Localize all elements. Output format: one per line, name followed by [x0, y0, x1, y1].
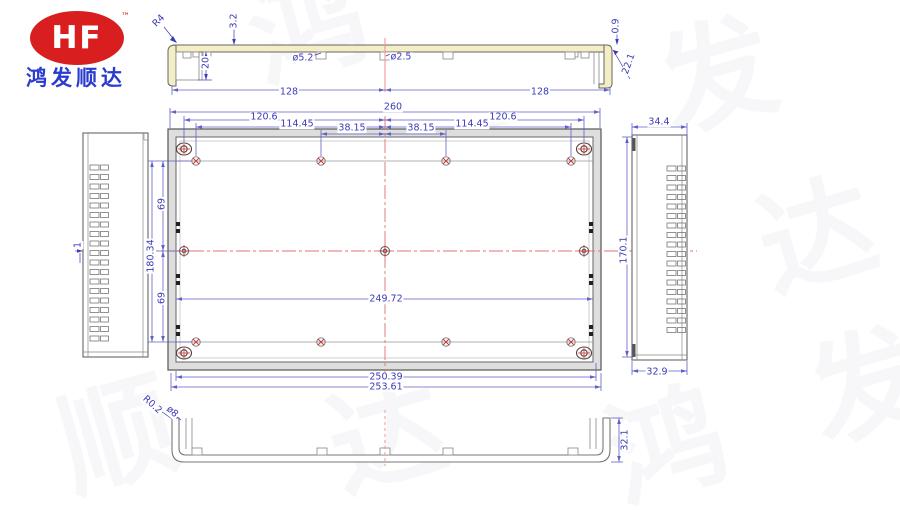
dim-top-thickness: 3.2	[229, 12, 239, 29]
dim-top-lip: 0.9	[611, 17, 621, 34]
dim-front-left-inner: 38.15	[337, 123, 366, 133]
dim-front-right-outer: 120.6	[488, 112, 517, 122]
dim-front-left-outer: 120.6	[249, 112, 278, 122]
dim-right-bottom-width: 32.9	[645, 367, 668, 377]
drawing-canvas	[0, 0, 900, 500]
dim-front-right-inner: 38.15	[406, 123, 435, 133]
dim-front-right-mid: 114.45	[454, 119, 489, 129]
brand-logo-text: HF	[51, 20, 102, 56]
trademark-symbol: ™	[121, 12, 130, 22]
dim-front-upper-half: 69	[157, 197, 167, 211]
dim-front-bottom-2: 253.61	[368, 382, 403, 392]
dim-front-lower-half: 69	[157, 291, 167, 305]
brand-logo: HF	[30, 11, 124, 65]
dim-left-wall: 1	[73, 241, 83, 249]
dim-front-height: 180.34	[146, 238, 156, 273]
dim-top-hole-center: ø2.5	[390, 52, 413, 62]
company-name: 鸿发顺达	[26, 62, 126, 92]
dim-right-top-width: 34.4	[647, 117, 670, 127]
dim-top-half-left: 128	[279, 87, 299, 97]
dim-front-left-mid: 114.45	[279, 119, 314, 129]
cad-drawing-page: { "logo": { "brand": "HF", "trademark": …	[0, 0, 900, 500]
dim-top-hole-left: ø5.2	[292, 53, 315, 63]
dim-right-height: 170.1	[619, 235, 629, 264]
dim-bottom-height: 32.1	[620, 428, 630, 451]
dim-front-overall: 260	[383, 102, 403, 112]
dim-top-half-right: 128	[530, 87, 550, 97]
dim-front-inner-width: 249.72	[368, 294, 403, 304]
dim-top-depth: 20	[201, 56, 211, 70]
